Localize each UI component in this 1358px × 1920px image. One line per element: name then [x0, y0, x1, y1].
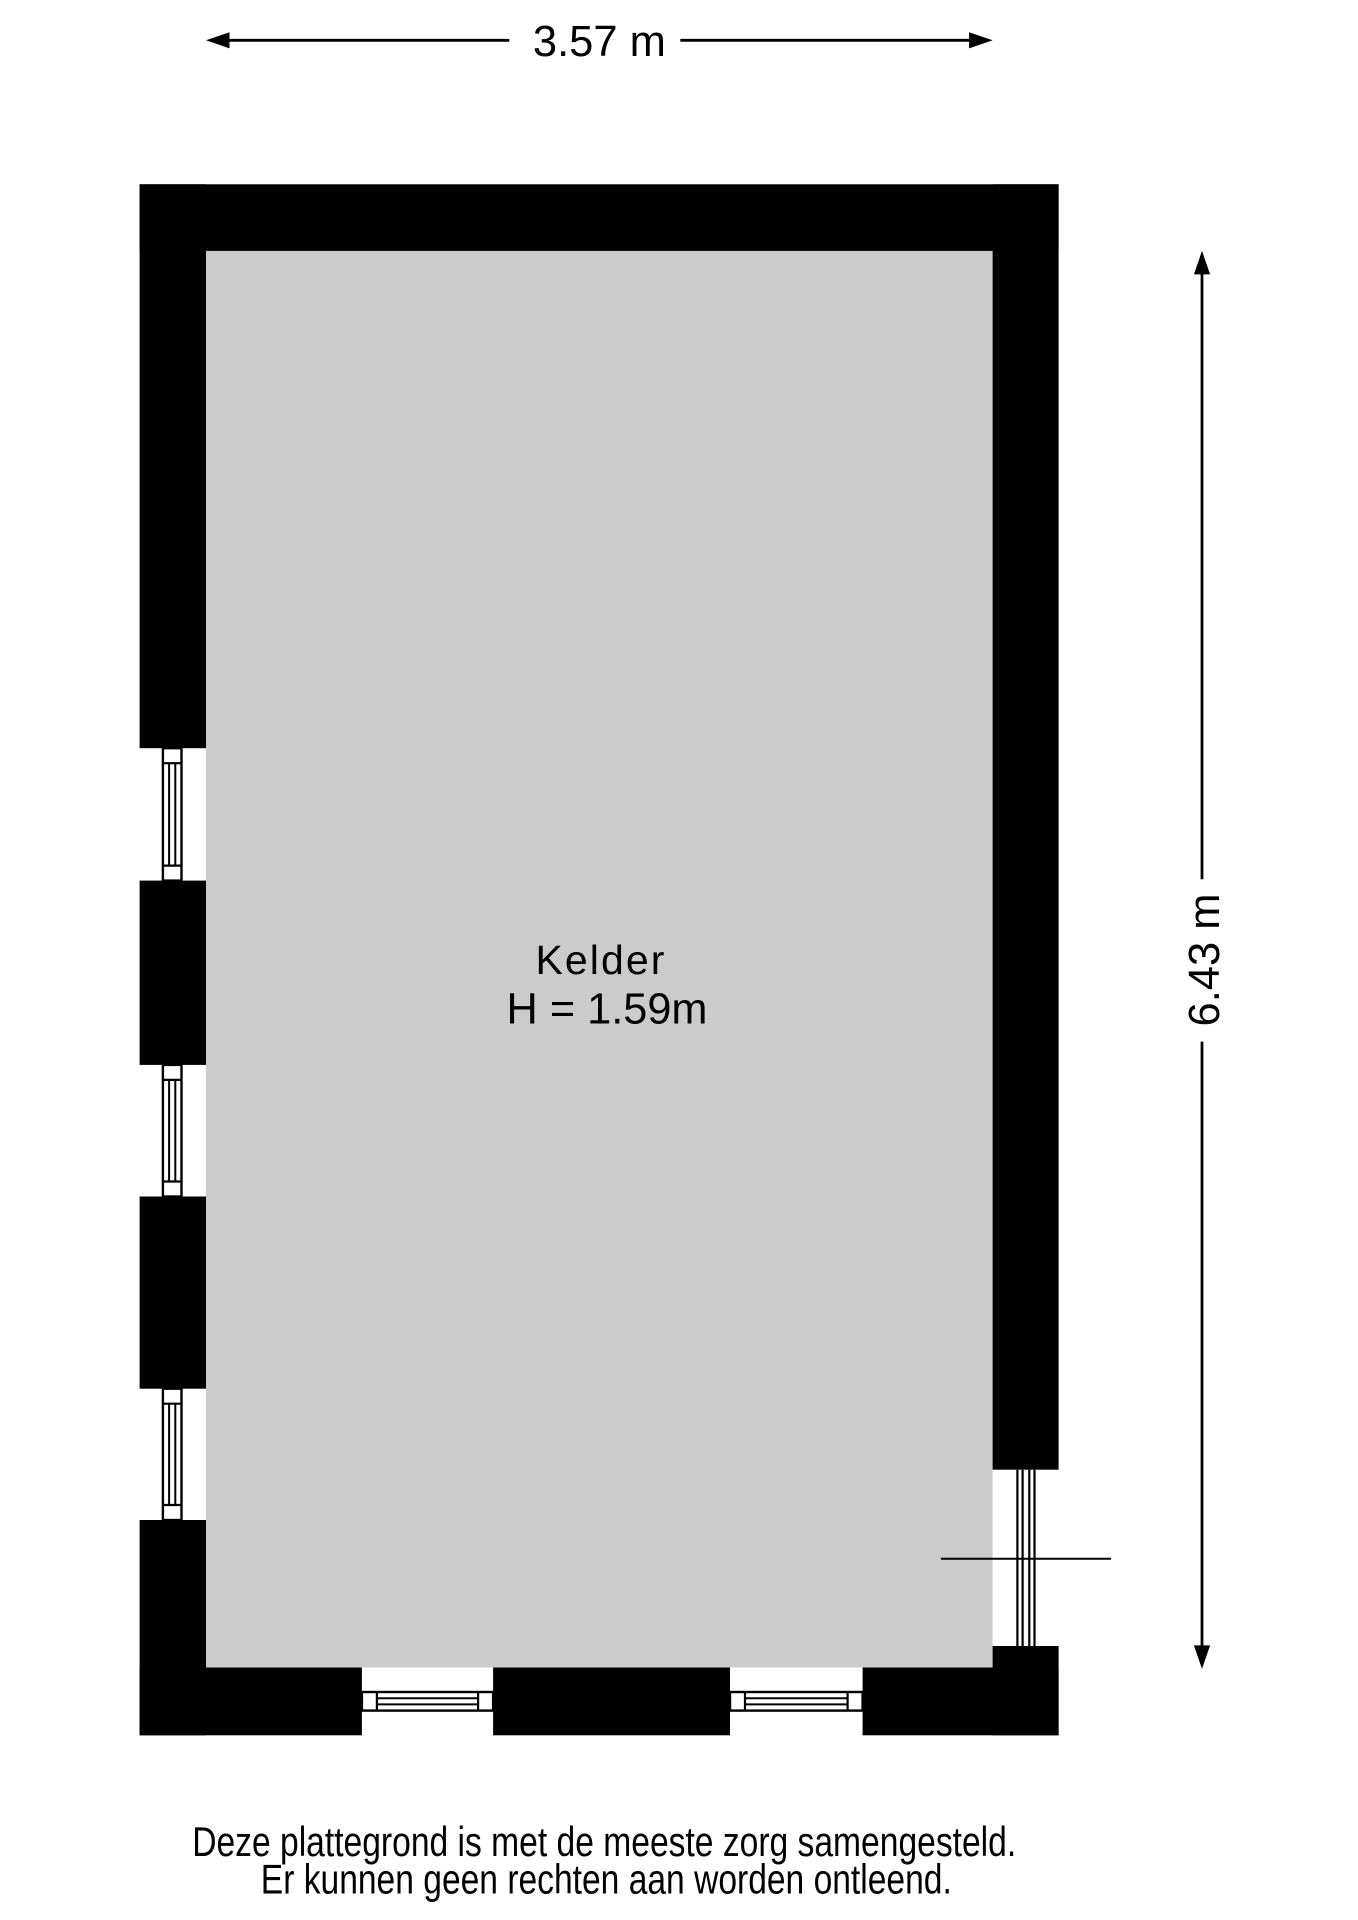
svg-text:6.43 m: 6.43 m: [1181, 894, 1229, 1027]
svg-text:Kelder: Kelder: [535, 937, 666, 983]
svg-text:3.57 m: 3.57 m: [533, 18, 666, 66]
svg-text:H = 1.59m: H = 1.59m: [507, 986, 708, 1034]
svg-text:Er kunnen geen rechten aan wor: Er kunnen geen rechten aan worden ontlee…: [261, 1857, 952, 1903]
